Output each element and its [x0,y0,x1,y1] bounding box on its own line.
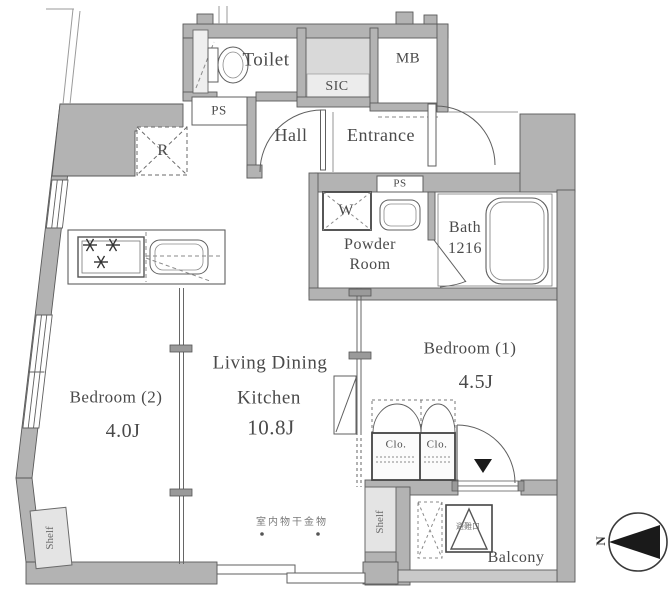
label-washer: W [338,203,354,219]
room-label-bath: Bath [449,220,481,236]
room-label-bedroom1: Bedroom (1) [424,340,517,357]
label-closet-1: Clo. [386,440,407,451]
kitchen-counter [68,230,225,284]
label-refrigerator: R [157,143,168,159]
compass-north-label: N [593,536,609,545]
room-label-bedroom2: Bedroom (2) [70,389,163,406]
label-shelf-left: Shelf [44,526,56,549]
room-label-toilet: Toilet [242,51,289,70]
room-area-bedroom1: 4.5J [459,372,494,392]
label-shelf-right: Shelf [374,510,386,533]
vanity-sink-icon [380,200,420,230]
label-closet-2: Clo. [427,440,448,451]
annotation-evacuation-hatch: 避難口 [456,523,480,531]
floor-plan: Toilet SIC MB PS Hall Entrance PS R W Po… [0,0,668,594]
room-label-balcony: Balcony [488,550,545,566]
room-label-powder-1: Powder [344,237,396,253]
label-ps-upper: PS [211,104,226,117]
room-area-ldk: 10.8J [247,418,294,439]
room-label-ldk-1: Living Dining [213,354,328,373]
bathtub-icon [486,198,548,284]
room-label-ldk-2: Kitchen [237,389,301,408]
room-area-bedroom2: 4.0J [106,421,141,441]
room-label-bath-size: 1216 [448,241,482,257]
room-label-entrance: Entrance [347,126,415,144]
room-label-hall: Hall [275,126,308,144]
room-label-sic: SIC [325,80,348,94]
room-label-mb: MB [396,52,420,67]
kitchen-sink-icon [150,240,208,274]
open-door-leaf [334,376,356,434]
room-label-powder-2: Room [349,257,390,273]
label-ps-lower: PS [393,179,406,190]
annotation-indoor-drying: 室内物干金物 [256,518,328,528]
